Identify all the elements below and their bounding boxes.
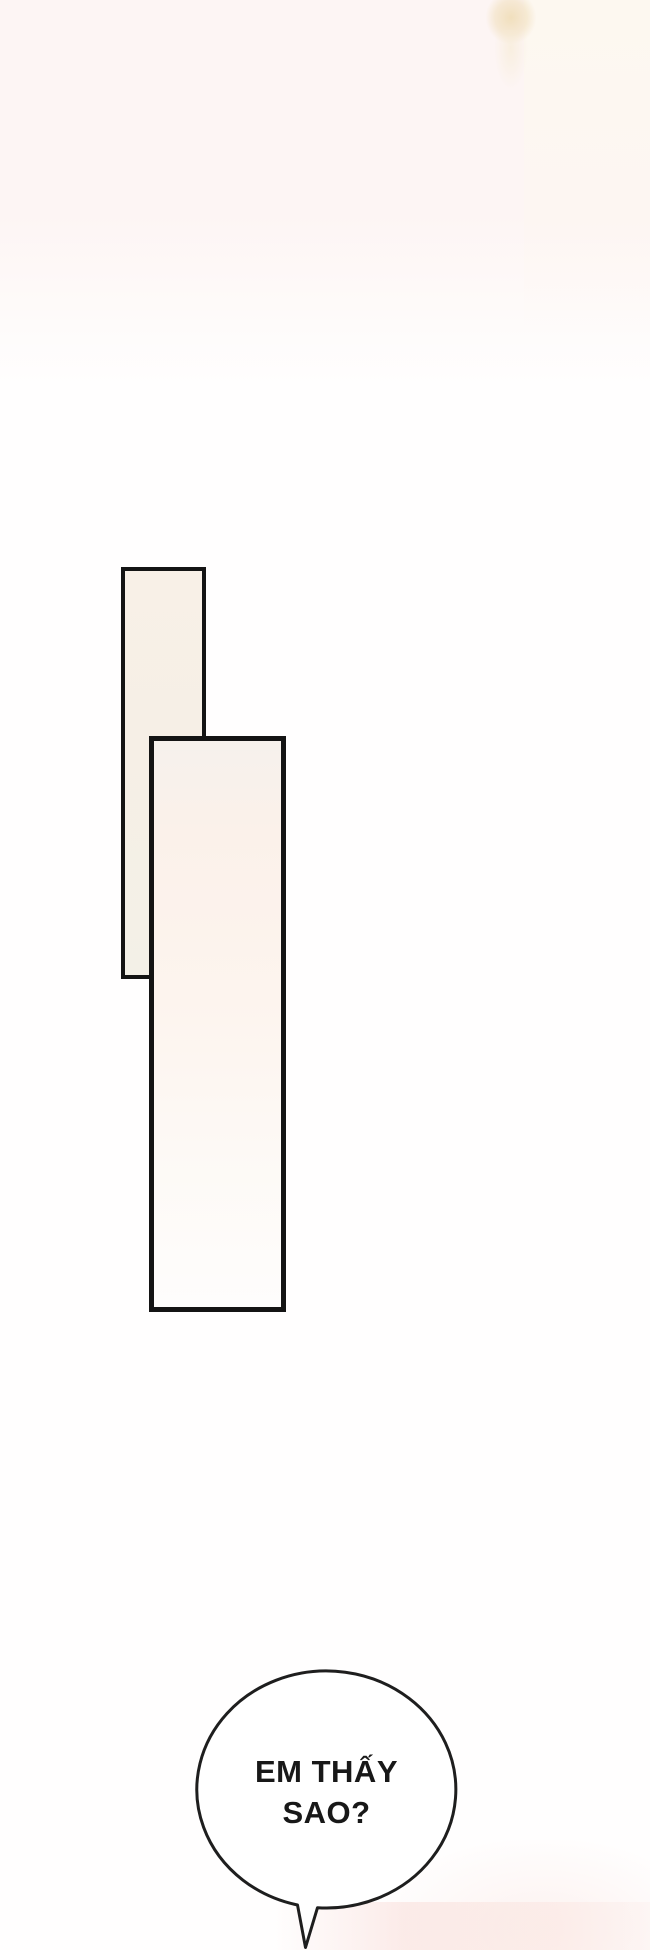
speech-line-2: SAO? <box>196 1792 457 1833</box>
speech-bubble-text: EM THẤY SAO? <box>196 1751 457 1833</box>
comic-page: EM THẤY SAO? <box>0 0 650 1950</box>
speech-line-1: EM THẤY <box>196 1751 457 1792</box>
speech-bubble <box>0 0 650 1950</box>
